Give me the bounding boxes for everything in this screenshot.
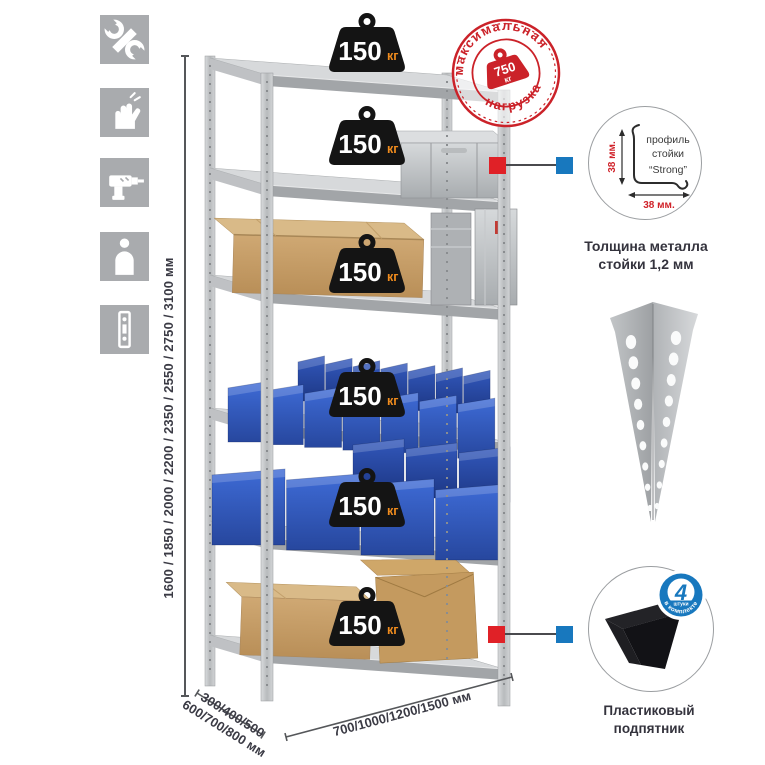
- weight-badge-shelf-2: 150 кг: [315, 105, 419, 169]
- connector-blue-square-top: [556, 157, 573, 174]
- connector-blue-square-bottom: [556, 626, 573, 643]
- weight-badge-shelf-4: 150 кг: [315, 357, 419, 421]
- metal-thickness-caption: Толщина металла стойки 1,2 мм: [573, 237, 719, 273]
- weight-badge-shelf-3: 150 кг: [315, 233, 419, 297]
- connector-line-top: [506, 164, 558, 166]
- svg-text:кг: кг: [387, 49, 398, 63]
- connector-line-bottom: [505, 633, 558, 635]
- max-load-stamp: максимальная нагрузка 750 кг: [449, 16, 563, 130]
- plastic-foot-caption: Пластиковый подпятник: [581, 702, 717, 737]
- weight-badge-shelf-1: 150 кг: [315, 12, 419, 76]
- drill-icon: [100, 158, 149, 207]
- svg-text:кг: кг: [387, 142, 398, 156]
- svg-text:кг: кг: [387, 623, 398, 637]
- weight-badge-shelf-5: 150 кг: [315, 467, 419, 531]
- connector-red-square-top: [489, 157, 506, 174]
- svg-text:150: 150: [338, 610, 381, 640]
- svg-text:“Strong”: “Strong”: [649, 164, 687, 176]
- svg-text:38 мм.: 38 мм.: [607, 141, 618, 173]
- svg-text:150: 150: [338, 381, 381, 411]
- wrench-icon: [100, 15, 149, 64]
- gloves-icon: [100, 88, 149, 137]
- svg-text:150: 150: [338, 36, 381, 66]
- svg-text:38 мм.: 38 мм.: [643, 200, 675, 211]
- count-badge: 4 штуки в комплекте: [655, 569, 707, 621]
- height-dimension-label: 1600 / 1850 / 2000 / 2200 / 2350 / 2550 …: [161, 193, 177, 663]
- rack-post-icon: [100, 305, 149, 354]
- weight-badge-shelf-6: 150 кг: [315, 586, 419, 650]
- svg-text:кг: кг: [387, 394, 398, 408]
- svg-text:кг: кг: [387, 270, 398, 284]
- svg-text:профиль: профиль: [646, 134, 690, 146]
- svg-text:штуки: штуки: [673, 602, 688, 608]
- svg-text:150: 150: [338, 129, 381, 159]
- angle-post-image: [598, 296, 708, 526]
- svg-text:150: 150: [338, 257, 381, 287]
- svg-text:150: 150: [338, 491, 381, 521]
- plastic-foot-detail-circle: 4 штуки в комплекте: [588, 566, 714, 692]
- connector-red-square-bottom: [488, 626, 505, 643]
- product-infographic: 1600 / 1850 / 2000 / 2200 / 2350 / 2550 …: [0, 0, 765, 765]
- post-profile-detail-circle: 38 мм. 38 мм. профиль стойки “Strong”: [588, 106, 702, 220]
- svg-text:кг: кг: [387, 504, 398, 518]
- height-dimension-line: [184, 55, 186, 697]
- svg-text:стойки: стойки: [652, 148, 684, 160]
- person-icon: [100, 232, 149, 281]
